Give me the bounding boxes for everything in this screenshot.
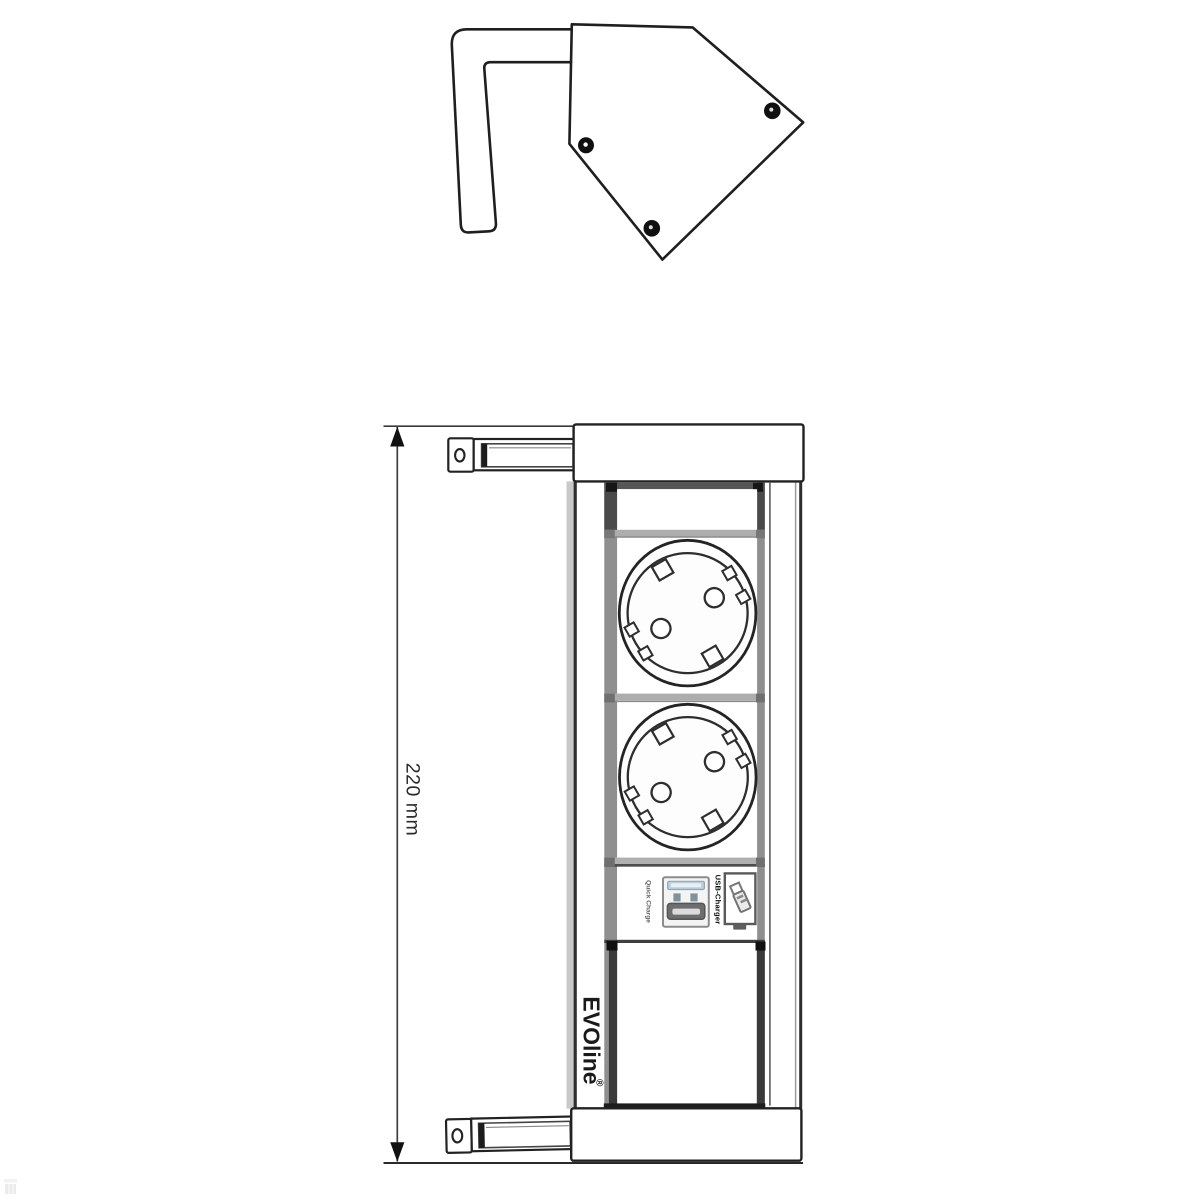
svg-text:®: ® (594, 1079, 605, 1087)
svg-text:EVOline: EVOline (579, 996, 605, 1084)
svg-text:Quick Charge: Quick Charge (645, 880, 652, 923)
svg-text:USB-Charger: USB-Charger (714, 875, 723, 925)
svg-text:220 mm: 220 mm (402, 763, 424, 836)
